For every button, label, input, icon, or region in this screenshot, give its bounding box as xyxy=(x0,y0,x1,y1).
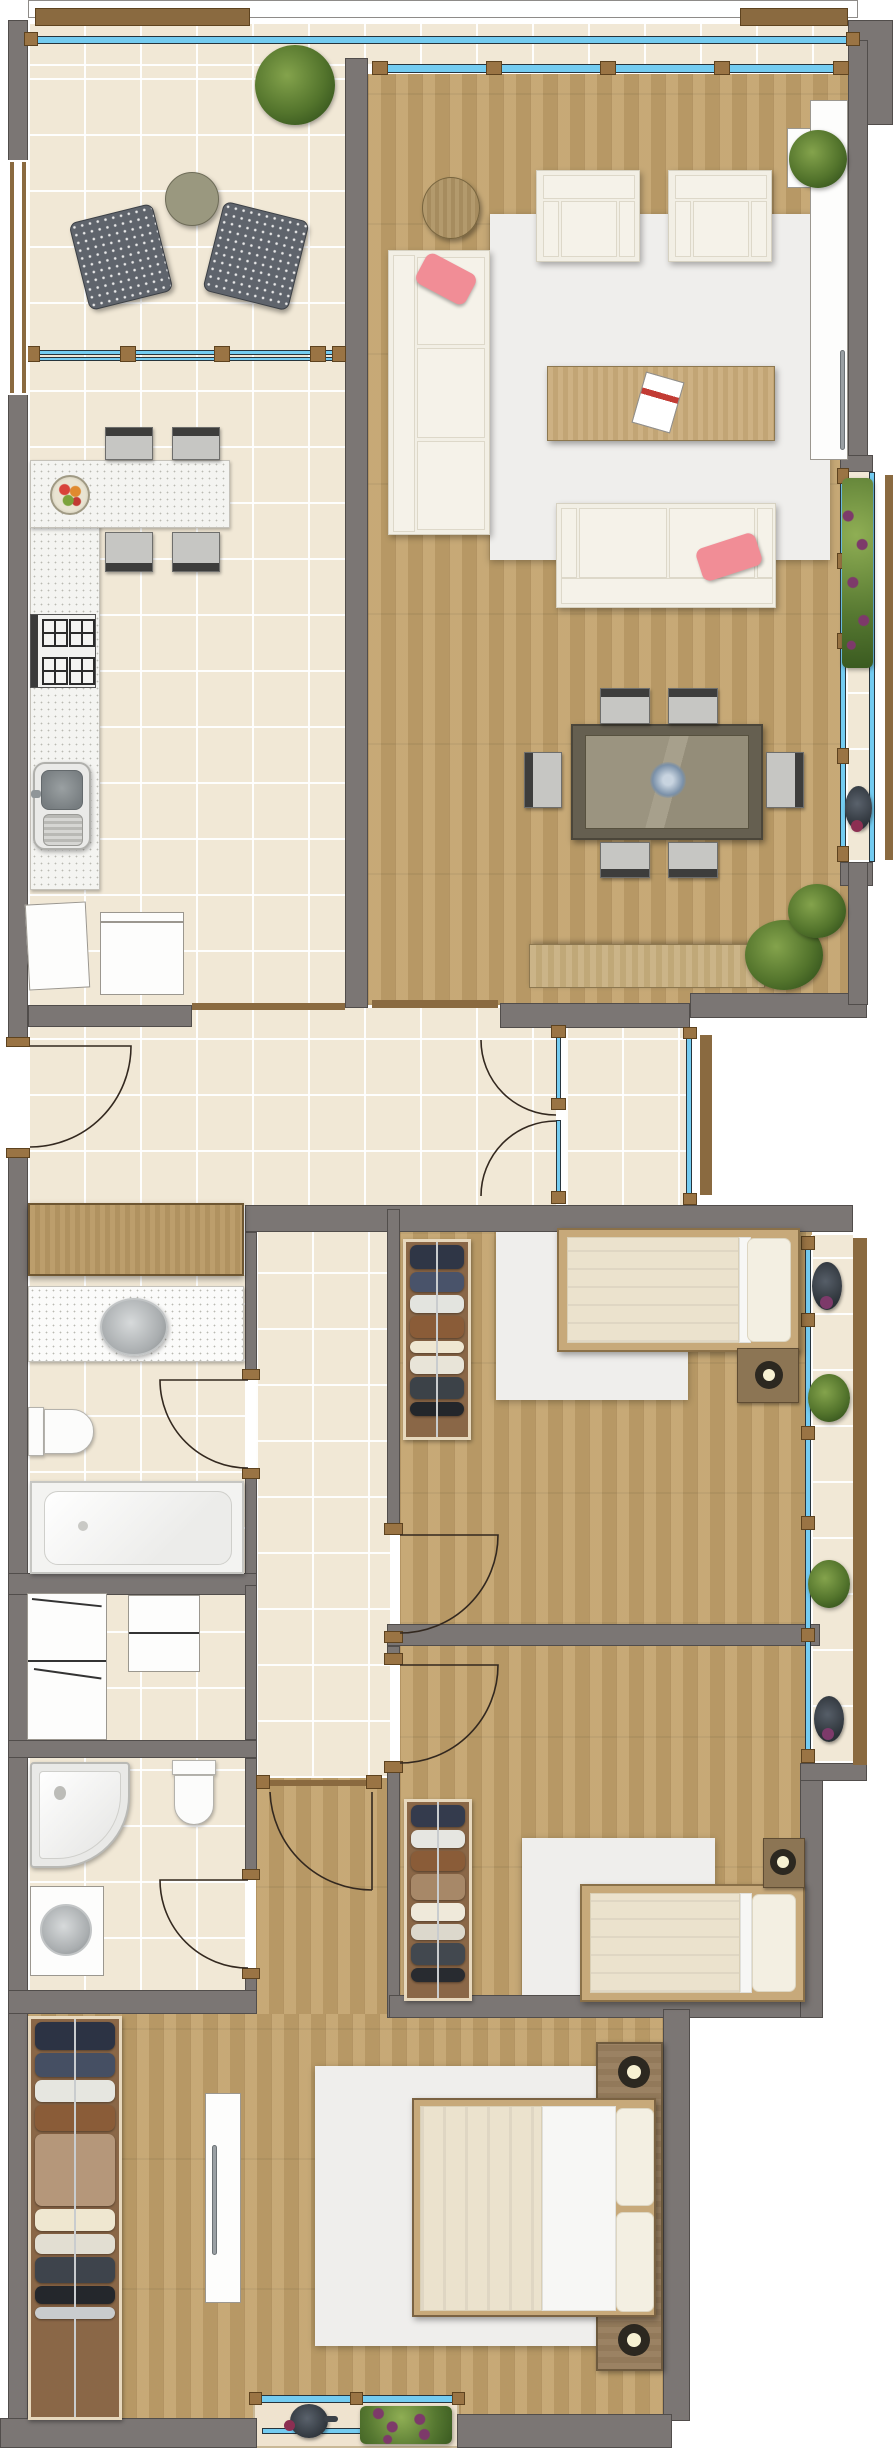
window-post xyxy=(801,1236,815,1250)
teapot-spout xyxy=(324,2416,338,2422)
bathroom-bottom-wall xyxy=(8,1573,257,1595)
window-post xyxy=(372,61,388,75)
shower-room-bottom-wall xyxy=(8,1990,257,2014)
master-balcony-flowers xyxy=(360,2406,452,2444)
dining-chair xyxy=(524,752,562,808)
entry-sidelight xyxy=(686,1035,692,1195)
door-post xyxy=(384,1631,403,1643)
living-bottom-wall-mid xyxy=(500,1003,690,1028)
cabinet-handle xyxy=(840,350,845,450)
kitchen-chair xyxy=(105,427,153,460)
door-post xyxy=(242,1869,260,1880)
balcony-flower-box xyxy=(842,478,873,668)
corridor-tile-floor xyxy=(256,1208,390,1778)
entry-floor xyxy=(566,1028,690,1208)
master-right-wall xyxy=(663,2009,690,2421)
dining-chair xyxy=(668,688,718,724)
bedroom1-left-wall xyxy=(387,1209,400,1535)
bedroom2-bed xyxy=(580,1884,805,2002)
kitchen-window xyxy=(32,350,342,355)
window-post xyxy=(714,61,730,75)
cooktop xyxy=(30,614,96,688)
kitchen-hall-threshold xyxy=(192,1003,345,1010)
door-post xyxy=(242,1369,260,1380)
storage-cabinet xyxy=(128,1595,200,1672)
bedroom-balcony-bottom-wall xyxy=(800,1763,867,1781)
bedroom2-wardrobe xyxy=(404,1799,472,2001)
kitchen-appliance xyxy=(100,912,184,995)
fruit-bowl xyxy=(50,475,90,515)
terrace-floor xyxy=(28,24,848,66)
master-bottom-wall-left xyxy=(0,2418,257,2448)
window-post xyxy=(837,846,849,862)
kitchen-chair xyxy=(105,532,153,572)
master-wardrobe xyxy=(28,2016,122,2420)
corridor-wood-floor xyxy=(256,1778,390,2018)
living-right-wall xyxy=(848,40,868,472)
door-post xyxy=(384,1523,403,1535)
bedroom-balcony-outer-rail xyxy=(853,1238,867,1765)
kitchen-appliance xyxy=(25,901,90,990)
bathroom-toilet xyxy=(28,1407,96,1456)
armchair xyxy=(668,170,772,262)
hall-floor xyxy=(28,1008,556,1208)
terrace-rail-wood-left xyxy=(35,8,250,26)
living-hall-threshold xyxy=(372,1000,498,1008)
balcony-plant xyxy=(808,1560,850,1608)
bedroom2-left-wall-lower xyxy=(387,1763,400,2018)
door-post xyxy=(256,1775,270,1789)
window-post xyxy=(801,1749,815,1763)
terrace-living-divider xyxy=(345,58,368,1008)
bathtub xyxy=(30,1481,244,1574)
bathroom-right-wall-lower xyxy=(245,1468,257,1585)
window-post xyxy=(801,1426,815,1440)
window-post xyxy=(350,2392,363,2405)
kitchen-sink xyxy=(33,762,91,850)
door-post xyxy=(6,1148,30,1158)
balcony-kettle-accent xyxy=(851,820,863,832)
master-bed xyxy=(412,2098,656,2317)
window-post xyxy=(214,346,230,362)
dining-chair xyxy=(600,842,650,878)
balcony-pot-flower xyxy=(822,1728,834,1740)
window-post xyxy=(801,1628,815,1642)
master-lamp-bottom xyxy=(618,2324,650,2356)
kitchen-hall-wall xyxy=(28,1005,192,1027)
bathroom-basin xyxy=(100,1298,168,1356)
entrance-door-opening xyxy=(6,1045,30,1150)
window-post xyxy=(801,1313,815,1327)
terrace-plant xyxy=(255,45,335,125)
window-post xyxy=(24,32,38,46)
bathroom-right-wall-upper xyxy=(245,1232,257,1380)
door-post xyxy=(242,1968,260,1979)
teapot-accent xyxy=(284,2420,295,2431)
window-post xyxy=(551,1098,566,1110)
master-balcony-teapot xyxy=(290,2404,328,2438)
living-bottom-wall-right xyxy=(690,993,867,1018)
balcony-plant xyxy=(808,1374,850,1422)
kitchen-window-inner xyxy=(32,357,342,361)
dining-chair xyxy=(766,752,804,808)
storage-right-wall xyxy=(245,1585,257,1740)
entrance-door-leaf-open xyxy=(700,1035,712,1195)
window-post xyxy=(846,32,860,46)
dining-chair xyxy=(668,842,718,878)
window-post xyxy=(551,1025,566,1038)
french-door-glazing-lower xyxy=(556,1120,561,1198)
corner-plant xyxy=(788,884,846,938)
window-post xyxy=(600,61,616,75)
master-bottom-wall-right xyxy=(457,2414,672,2448)
bedroom1-bedroom2-wall xyxy=(387,1624,820,1646)
dining-centerpiece xyxy=(650,762,686,798)
window-post xyxy=(683,1027,697,1039)
bedroom-balcony-floor xyxy=(811,1235,853,1763)
bedroom1-wardrobe xyxy=(403,1239,471,1440)
french-door-glazing-upper xyxy=(556,1032,561,1108)
bedroom2-lamp xyxy=(770,1849,796,1875)
master-lamp-top xyxy=(618,2056,650,2088)
door-post xyxy=(384,1653,403,1665)
window-post xyxy=(683,1193,697,1205)
shelf-plant xyxy=(789,130,847,188)
window-post xyxy=(249,2392,262,2405)
shower-room-toilet xyxy=(172,1760,216,1828)
door-post xyxy=(242,1468,260,1479)
living-right-wall-lower xyxy=(848,862,868,1005)
storage-cabinet-tall xyxy=(27,1593,107,1740)
dresser-handle xyxy=(212,2145,217,2255)
terrace-table xyxy=(165,172,219,226)
floor-plan-canvas xyxy=(0,0,893,2448)
terrace-side-window-frame xyxy=(10,162,14,393)
balcony-pot-flower xyxy=(820,1296,833,1309)
round-side-table xyxy=(422,177,480,239)
hall-cabinet xyxy=(28,1203,244,1276)
bedroom1-lamp xyxy=(755,1361,783,1389)
washbasin xyxy=(40,1904,92,1956)
bedroom1-bed xyxy=(557,1228,800,1352)
window-post xyxy=(486,61,502,75)
window-post xyxy=(837,748,849,764)
kitchen-chair xyxy=(172,532,220,572)
shower-room-top-wall xyxy=(8,1740,257,1758)
door-post xyxy=(366,1775,382,1789)
sideboard xyxy=(529,944,765,988)
window-post xyxy=(120,346,136,362)
window-post xyxy=(332,346,346,362)
terrace-side-window-frame xyxy=(22,162,26,393)
corridor-threshold xyxy=(268,1780,370,1786)
living-balcony-outer-rail xyxy=(885,475,893,860)
armchair xyxy=(536,170,640,262)
window-post xyxy=(452,2392,465,2405)
master-dresser xyxy=(205,2093,241,2303)
window-post xyxy=(551,1191,566,1204)
door-post xyxy=(384,1761,403,1773)
window-post xyxy=(801,1516,815,1530)
window-post xyxy=(310,346,326,362)
window-post xyxy=(833,61,849,75)
dining-chair xyxy=(600,688,650,724)
kitchen-chair xyxy=(172,427,220,460)
terrace-rail-wood-right xyxy=(740,8,848,26)
terrace-railing-glazing xyxy=(30,36,854,44)
door-post xyxy=(6,1037,30,1047)
